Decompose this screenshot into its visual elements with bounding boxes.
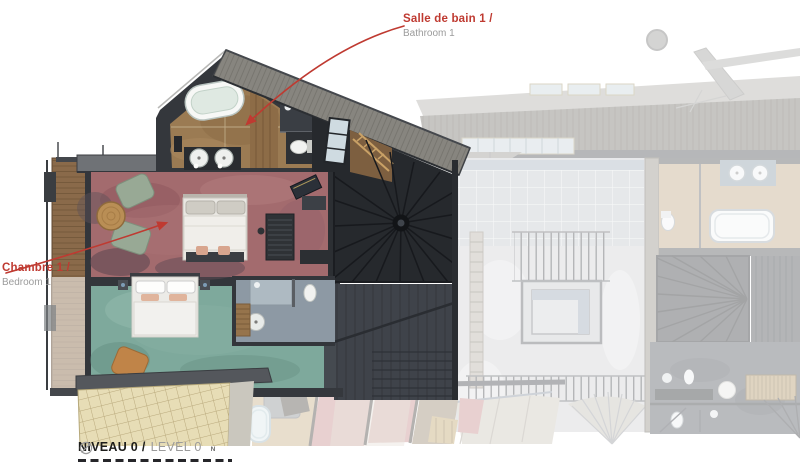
- floor-plan-canvas: Salle de bain 1 / Bathroom 1 Chambre 1 /…: [0, 0, 800, 470]
- compass-north-icon: N: [211, 446, 217, 453]
- floor-plan: [0, 0, 800, 470]
- ladder-stair: [470, 232, 483, 388]
- unit-niveau0: [44, 50, 470, 447]
- side-table: [97, 202, 125, 230]
- chimney: [647, 30, 667, 50]
- skylight: [324, 118, 349, 164]
- annotation-bathroom1: Salle de bain 1 / Bathroom 1: [403, 13, 493, 40]
- level-label-en: LEVEL 0: [151, 440, 202, 454]
- level-label: NIVEAU 0 / LEVEL 0 N: [78, 440, 216, 454]
- annotation-bedroom1-title: Chambre 1 /: [2, 262, 70, 275]
- wardrobe: [266, 214, 294, 260]
- toilet: [291, 141, 308, 154]
- bedroom-1-room: [77, 172, 328, 280]
- toilet: [304, 285, 316, 302]
- north-arrow-icon: [78, 440, 94, 456]
- annotation-bathroom1-subtitle: Bathroom 1: [403, 27, 493, 40]
- toilet: [684, 370, 694, 385]
- annotation-bathroom1-title: Salle de bain 1 /: [403, 13, 493, 26]
- shingle-roof: [76, 368, 272, 447]
- annotation-bedroom1-subtitle: Bedroom 1: [2, 276, 70, 289]
- sink: [662, 373, 672, 383]
- stairwell-railing: [514, 232, 608, 281]
- dim-courtyard: [455, 158, 648, 444]
- annotation-bedroom1: Chambre 1 / Bedroom 1: [2, 262, 70, 289]
- footer-dashed-line: [78, 459, 232, 462]
- compass-n-label: N: [211, 446, 216, 453]
- dim-right-rooms: [645, 158, 800, 438]
